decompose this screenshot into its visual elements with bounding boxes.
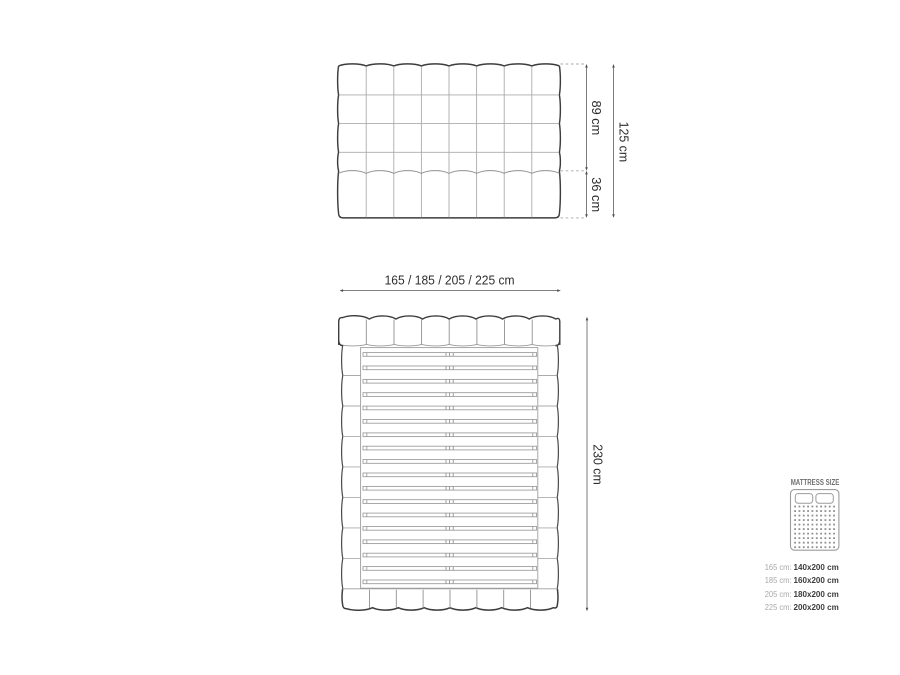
svg-text:36 cm: 36 cm [589,177,604,212]
svg-text:140x200 cm: 140x200 cm [794,562,840,572]
svg-text:MATTRESS SIZE: MATTRESS SIZE [791,478,840,487]
svg-text:205 cm:: 205 cm: [765,589,792,599]
svg-text:225 cm:: 225 cm: [765,602,792,612]
svg-text:180x200 cm: 180x200 cm [794,589,840,599]
svg-text:165 cm:: 165 cm: [765,562,792,572]
svg-text:125 cm: 125 cm [617,122,632,163]
svg-text:185 cm:: 185 cm: [765,575,792,585]
svg-text:89 cm: 89 cm [589,100,604,135]
svg-text:200x200 cm: 200x200 cm [794,602,840,612]
svg-text:160x200 cm: 160x200 cm [794,575,840,585]
svg-text:230 cm: 230 cm [591,444,606,485]
svg-text:165 / 185 / 205 / 225 cm: 165 / 185 / 205 / 225 cm [385,272,515,287]
